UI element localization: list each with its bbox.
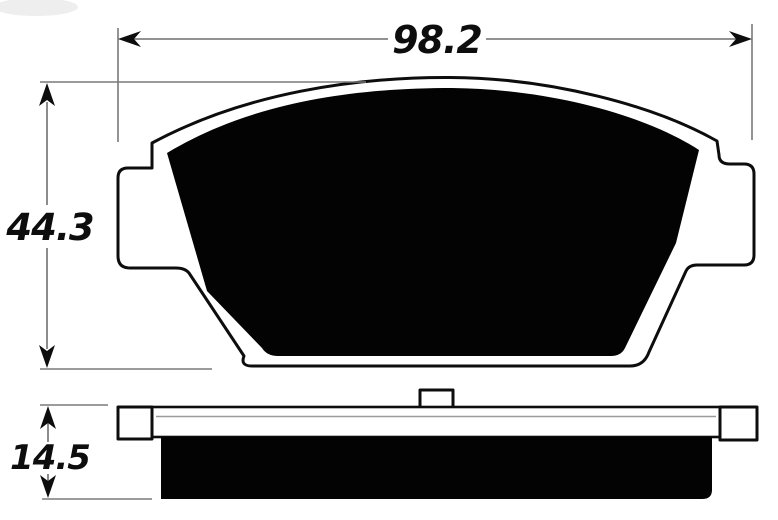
width-dimension-label: 98.2 bbox=[392, 18, 482, 62]
thickness-dimension-label: 14.5 bbox=[10, 438, 90, 478]
scan-artifact bbox=[0, 0, 78, 16]
brake-pad-drawing: 98.2 44.3 14.5 bbox=[0, 0, 778, 520]
backing-plate-side bbox=[152, 407, 720, 437]
side-view-right-lug bbox=[720, 407, 757, 440]
height-dimension-label: 44.3 bbox=[5, 206, 93, 249]
technical-drawing-canvas: 98.2 44.3 14.5 bbox=[0, 0, 778, 520]
side-view-left-lug bbox=[118, 407, 152, 439]
friction-material-front bbox=[167, 88, 699, 356]
friction-material-side bbox=[161, 437, 712, 499]
pad-side-view bbox=[118, 390, 757, 499]
pad-front-view bbox=[118, 77, 754, 366]
